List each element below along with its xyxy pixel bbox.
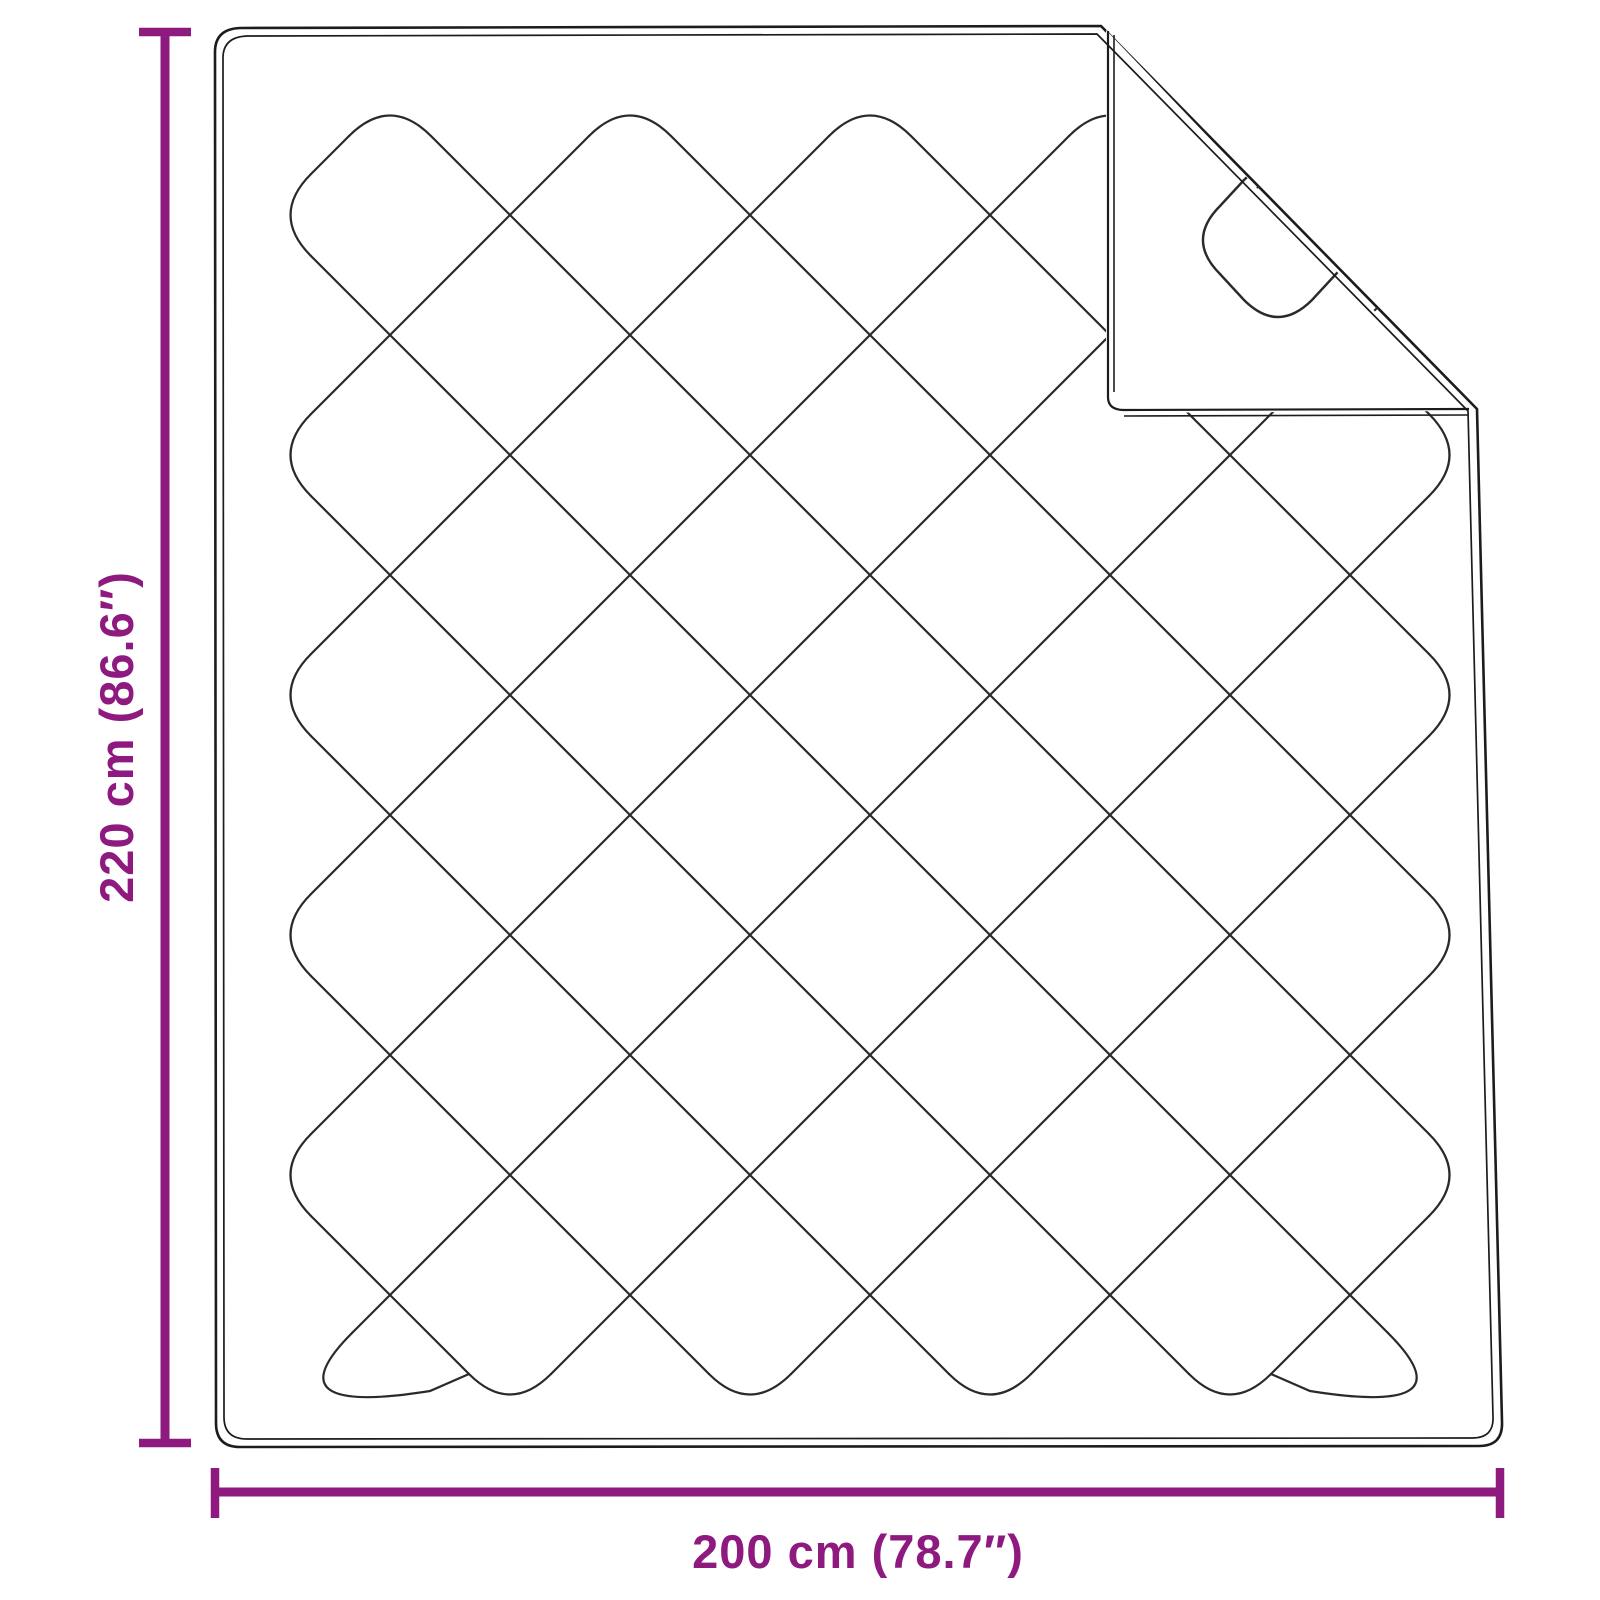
- blanket: [215, 26, 1502, 1447]
- fold-face: [1106, 30, 1470, 413]
- height-dimension: [139, 31, 191, 1444]
- width-dimension: [215, 1468, 1500, 1518]
- blanket-dimension-diagram: 220 cm (86.6″) 200 cm (78.7″): [0, 0, 1600, 1600]
- page: 220 cm (86.6″) 200 cm (78.7″): [0, 0, 1600, 1600]
- width-label: 200 cm (78.7″): [692, 1525, 1024, 1578]
- fold-edge-inner-bottom: [1124, 415, 1468, 416]
- blanket-silhouette: [215, 26, 1502, 1447]
- height-label: 220 cm (86.6″): [90, 571, 143, 903]
